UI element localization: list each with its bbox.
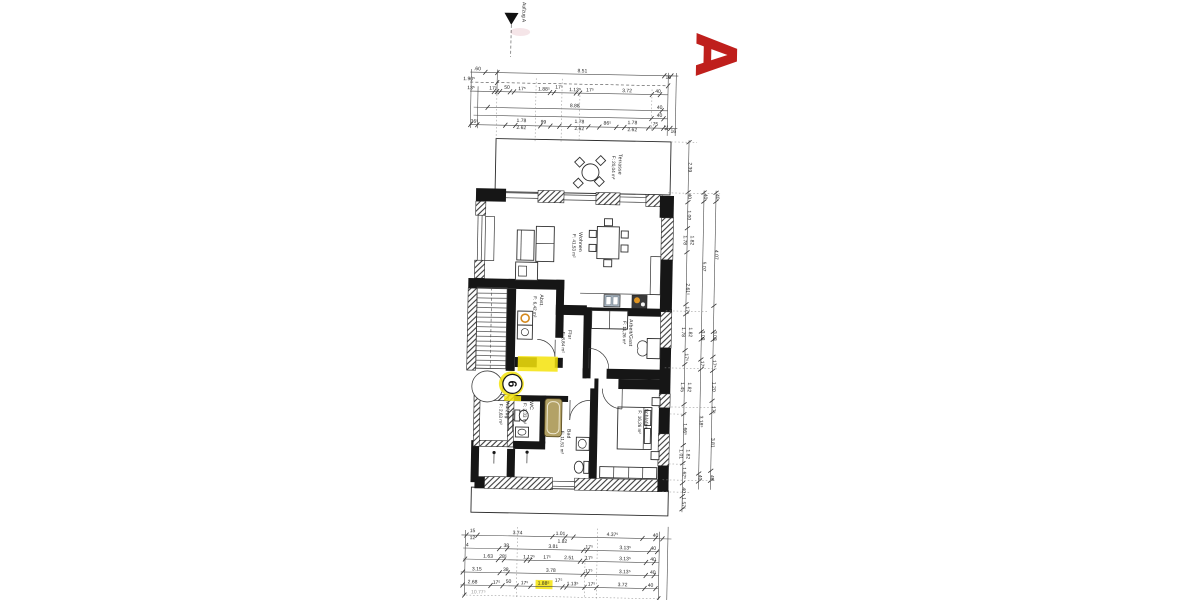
room-label-flur: Flur <box>566 330 572 340</box>
entrance-door-swing <box>472 371 504 403</box>
dim-label-bottom: 15 <box>470 528 476 534</box>
cooktop-icon <box>632 295 647 308</box>
dim-label-bottom: 1.88⁵ <box>538 581 550 587</box>
dim-label-right: 40 <box>697 475 703 481</box>
dim-label-bottom: 17⁵ <box>585 545 593 551</box>
dim-label-top: 16 <box>670 129 676 135</box>
dim-label-top: 40 <box>657 105 663 111</box>
dim-label-bottom: 17⁵ <box>555 578 563 584</box>
window-icon <box>564 195 596 201</box>
bath-fixtures <box>574 437 589 473</box>
dim-label-bottom: 1.63 <box>483 554 493 560</box>
dim-label-bottom: 38 <box>503 567 509 573</box>
dim-label-right: 40 <box>702 194 708 200</box>
dim-label-right: 2.39 <box>686 162 692 172</box>
dim-label-top: 86⁵ <box>604 121 612 127</box>
dim-label-bottom: 2.51 <box>564 555 574 561</box>
room-area: F: 2,63 m² <box>498 404 503 425</box>
dim-label-bottom: 4 <box>466 542 469 548</box>
dim-label-top: 17⁵ <box>489 86 497 92</box>
dim-label-top: 13⁵ <box>467 85 475 91</box>
dim-label-top: 8.88 <box>570 103 580 109</box>
dim-label-right: 40 <box>709 475 715 481</box>
dim-label-right: 1.00 <box>686 210 692 220</box>
dim-label-bottom: 17⁵ <box>585 556 593 562</box>
dim-label-right: 1.82 <box>684 449 690 459</box>
dim-label-right: 1.20 <box>710 382 716 392</box>
dim-label-top: 50 <box>504 85 510 91</box>
dim-label-bottom: 17⁵ <box>493 580 501 586</box>
dim-label-bottom: 38 <box>503 543 509 549</box>
room-label-wc: WC <box>528 401 534 410</box>
dim-label-top: 17⁵ <box>518 86 526 92</box>
window-icon <box>620 197 646 202</box>
dim-label-bottom: 3.15 <box>472 566 482 572</box>
bathtub-icon <box>544 399 562 437</box>
room-area: F: 3,33 m² <box>522 403 527 424</box>
dim-label-top: 17⁵ <box>555 85 563 91</box>
dim-label-top: 17⁵ <box>586 87 594 93</box>
entrance-badge-number: 6 <box>505 380 519 387</box>
dim-label-top: .60 <box>474 66 481 72</box>
dim-label-bottom: 28⁵ <box>499 554 507 560</box>
dim-label-top: 99 <box>541 119 547 125</box>
dim-label-right: 3.03 <box>711 331 717 341</box>
room-label-bad: Bad <box>565 429 571 439</box>
room-label-schlafen: Schlafen <box>643 408 649 429</box>
dim-label-right: 1.01 <box>677 449 683 459</box>
dim-label-top: 3.72 <box>622 88 632 94</box>
dim-label-bottom: 2.68 <box>468 579 478 585</box>
plan-letter: A <box>682 32 748 77</box>
dim-label-bottom: 10.77⁵ <box>471 589 486 595</box>
room-label-terrasse: Terrasse <box>616 154 622 175</box>
terrace <box>495 139 671 195</box>
dim-label-bottom: 3.81 <box>548 544 558 550</box>
dim-label-bottom: 3.74 <box>513 530 523 536</box>
dim-label-bottom: 17⁵ <box>588 582 596 588</box>
dim-label-top: 40 <box>655 89 661 95</box>
section-marker-label: Aufzug A <box>520 2 526 23</box>
room-label-abst: Abst. <box>538 294 544 307</box>
dining-table-icon <box>589 218 629 267</box>
room-area: F: 41,53 m² <box>571 234 576 258</box>
dim-label-right: 5.07 <box>701 262 707 272</box>
dim-label-top: 1.88⁵ <box>538 87 550 93</box>
dim-label-right: 40 <box>686 193 692 199</box>
dim-label-bottom: 3.72 <box>618 582 628 588</box>
dim-label-top: 8.51 <box>577 68 587 74</box>
dim-label-right: 1.82 <box>689 235 695 245</box>
dim-label-right: 1.66⁵ <box>681 423 687 435</box>
dim-label-bottom: 17⁵ <box>543 555 551 561</box>
room-area: F: 16,26 m² <box>637 410 642 434</box>
dim-label-top: 16 <box>665 75 671 81</box>
dim-label-bottom: 12 <box>470 535 476 541</box>
staircase <box>476 287 508 369</box>
room-area: F: 11,51 m² <box>560 431 565 455</box>
window-icon <box>552 481 574 486</box>
dim-label-right: 3.03 <box>699 331 705 341</box>
dim-label-bottom: 4.37⁵ <box>607 532 619 538</box>
dim-label-bottom: 40 <box>653 533 659 539</box>
room-label-aufzug: Aufzug <box>504 402 510 419</box>
dim-label-right: 1.82 <box>687 327 693 337</box>
dim-label-bottom: 17⁵ <box>585 569 593 575</box>
dim-label-top: 2.62 <box>516 125 526 131</box>
dim-label-right: 17⁵ <box>683 353 689 361</box>
dim-label-bottom: 40 <box>650 546 656 552</box>
dim-label-right: 4.07 <box>713 250 719 260</box>
dim-label-top: 1.78 <box>517 118 527 124</box>
dim-label-right: 1.78 <box>680 327 686 337</box>
room-label-wohnen: Wohnen <box>577 232 583 252</box>
dim-label-bottom: 3.78 <box>546 568 556 574</box>
sideboard-icon <box>600 467 657 479</box>
floor-plan-drawing: Aufzug A A <box>0 0 1200 600</box>
dim-label-bottom: 17⁵ <box>521 580 529 586</box>
window-icon <box>506 193 538 199</box>
highlight-wall <box>518 356 558 372</box>
kitchen-counter <box>580 255 661 309</box>
dim-label-right: 3.81 <box>709 438 715 448</box>
terrace-table-icon <box>582 164 599 181</box>
dim-label-top: 1.78 <box>574 119 584 125</box>
dim-label-bottom: 40 <box>648 583 654 589</box>
dim-label-right: 40 <box>714 194 720 200</box>
sofa-icons <box>515 226 554 281</box>
kitchen-sink-icon <box>604 295 620 307</box>
dim-label-top: 1.78 <box>627 120 637 126</box>
dim-label-top: 2.62 <box>574 126 584 132</box>
window-icon <box>477 215 494 260</box>
dim-label-bottom: 1.13⁵ <box>567 581 579 587</box>
dim-label-top: 1.90⁵ <box>463 76 475 82</box>
dim-label-top: 1.13⁵ <box>569 87 581 93</box>
washer-dryer-icons <box>517 311 533 339</box>
dim-label-bottom: 1.12⁵ <box>523 554 535 560</box>
dim-label-bottom: 3.13⁵ <box>619 545 631 551</box>
dim-label-bottom: 1.82 <box>557 539 567 545</box>
dim-label-top: 24 <box>662 125 668 131</box>
dim-label-right: 17⁵ <box>684 306 690 314</box>
dim-label-bottom: 40 <box>650 557 656 563</box>
room-area: F: 8,84 m² <box>560 332 565 353</box>
floor-plan-scan: Aufzug A A <box>0 0 1200 600</box>
dim-label-top: 75 <box>653 122 659 128</box>
dim-label-top: 40 <box>657 113 663 119</box>
dim-label-right: 1.82 <box>686 382 692 392</box>
room-area: F: 20,04 m² <box>611 156 616 180</box>
dim-label-right: 3.18⁵ <box>698 416 704 428</box>
dim-label-bottom: 40 <box>650 570 656 576</box>
furniture-layer <box>492 217 664 479</box>
dim-label-right: 40 <box>680 487 686 493</box>
room-area: F: 6,42 m² <box>532 296 537 317</box>
dim-label-right: 17⁵ <box>710 406 716 414</box>
dim-label-top: 36⁵ <box>471 119 479 125</box>
dim-label-right: 1.45 <box>679 382 685 392</box>
room-label-arbeitgast: Arbeit/Gast <box>627 319 634 347</box>
dim-label-top: 2.62 <box>627 127 637 133</box>
dim-label-bottom: 3.13⁵ <box>619 569 631 575</box>
room-area: F: 11,26 m² <box>622 321 627 345</box>
scan-smudge <box>510 28 530 36</box>
dim-label-right: 1.78 <box>682 235 688 245</box>
dim-label-bottom: 1.01 <box>556 531 566 537</box>
dim-label-right: 17⁵ <box>711 360 717 368</box>
dim-label-right: 1.62⁵ <box>681 467 687 479</box>
dim-label-bottom: 50 <box>506 579 512 585</box>
dim-label-right: 1.57⁵ <box>680 497 686 509</box>
dim-label-right: 17⁵ <box>699 361 705 369</box>
dim-label-right: 2.61⁵ <box>684 283 690 295</box>
dim-label-bottom: 3.13⁵ <box>619 556 631 562</box>
